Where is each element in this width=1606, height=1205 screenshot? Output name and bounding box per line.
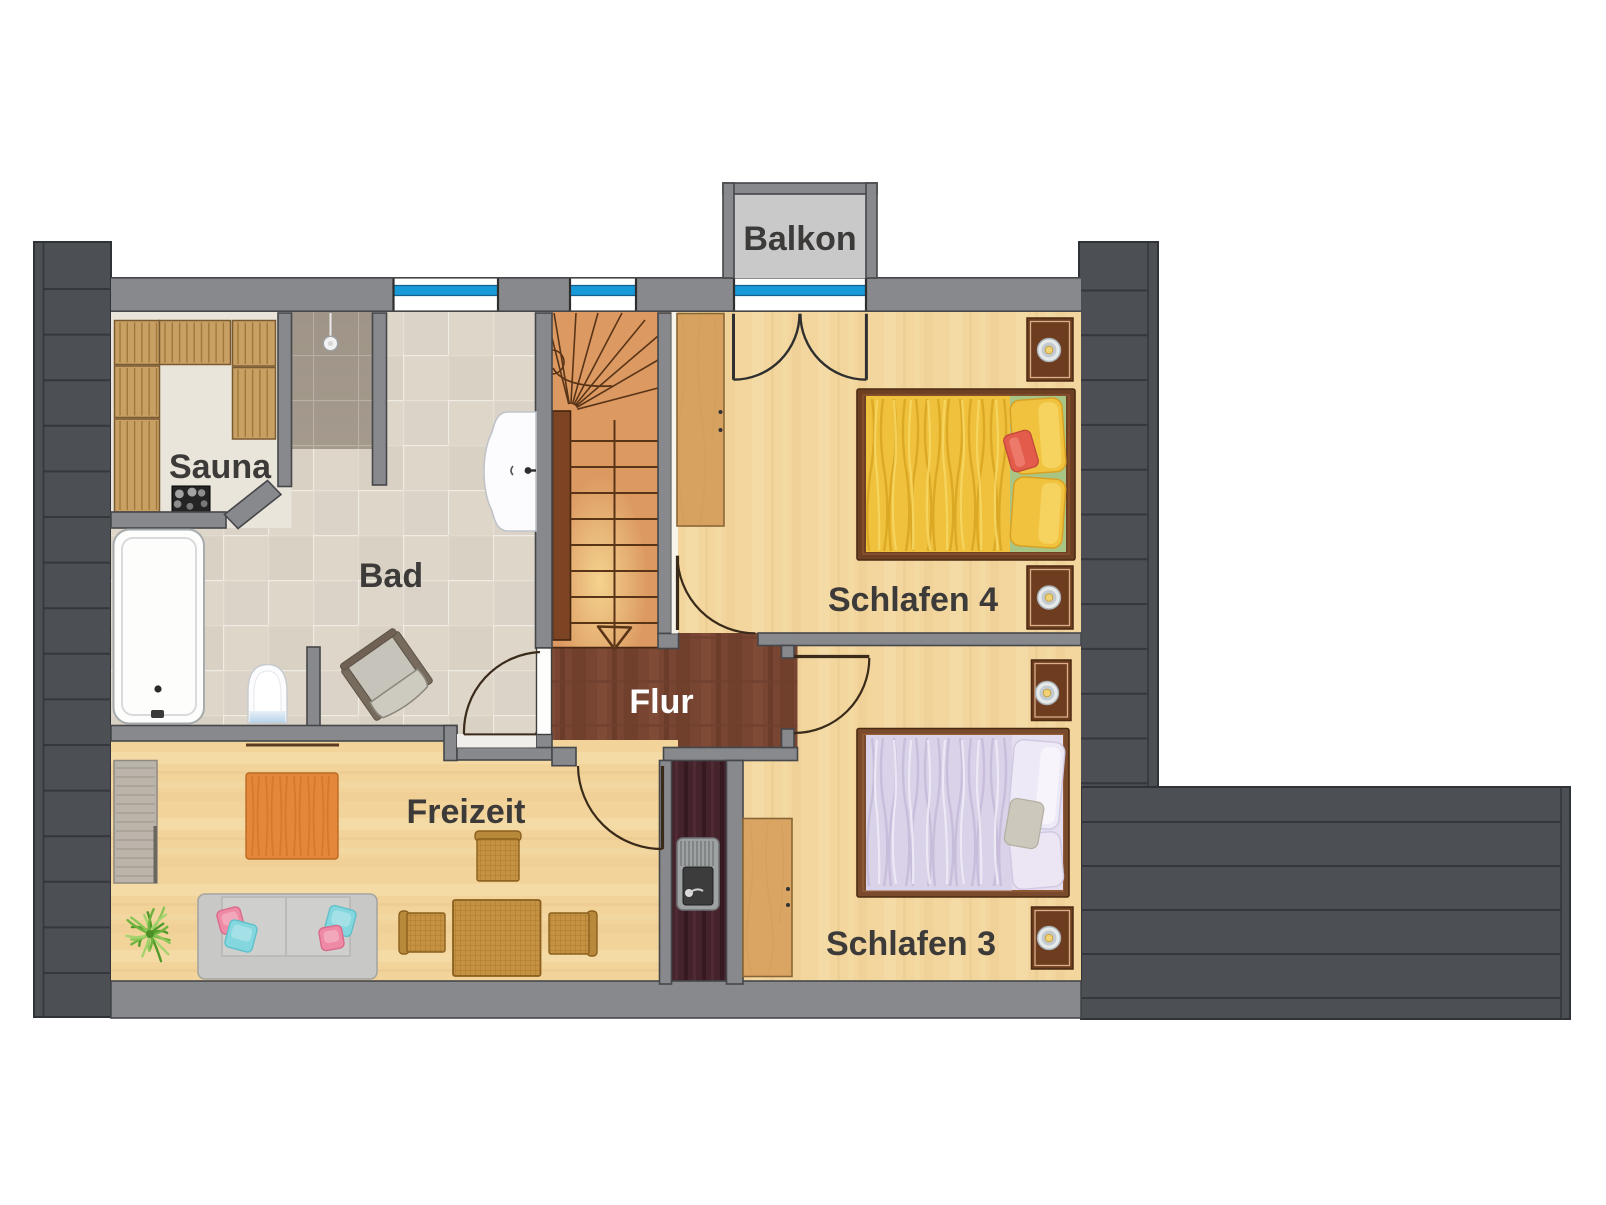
svg-text:Balkon: Balkon xyxy=(743,220,856,258)
svg-text:Schlafen 4: Schlafen 4 xyxy=(828,581,998,619)
svg-text:Bad: Bad xyxy=(359,557,423,595)
svg-text:Freizeit: Freizeit xyxy=(406,793,525,831)
svg-text:Schlafen 3: Schlafen 3 xyxy=(826,925,996,963)
svg-text:Sauna: Sauna xyxy=(169,448,272,486)
svg-text:Flur: Flur xyxy=(629,683,693,721)
